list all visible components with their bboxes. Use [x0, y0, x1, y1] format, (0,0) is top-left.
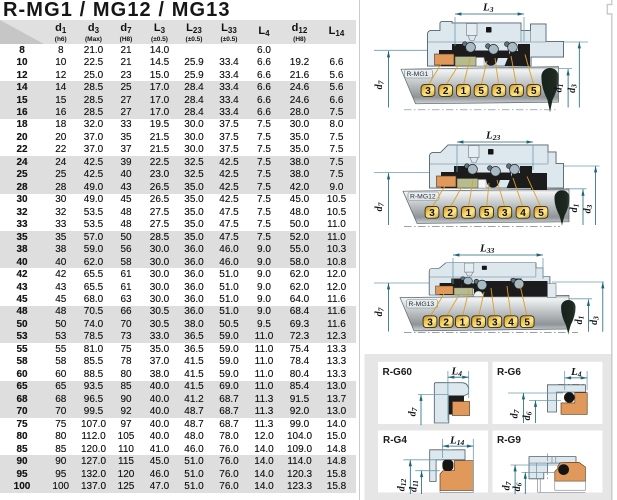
svg-text:3: 3: [429, 208, 435, 219]
svg-text:2: 2: [447, 208, 453, 219]
svg-text:4: 4: [514, 86, 520, 97]
svg-text:d1: d1: [569, 204, 581, 213]
svg-text:L33: L33: [479, 243, 494, 256]
svg-text:3: 3: [427, 317, 433, 328]
svg-text:4: 4: [508, 317, 514, 328]
svg-text:5: 5: [484, 208, 490, 219]
svg-text:d3: d3: [567, 84, 579, 93]
svg-text:1: 1: [461, 86, 467, 97]
svg-text:3: 3: [425, 86, 431, 97]
svg-text:d6: d6: [522, 411, 534, 420]
svg-text:d7: d7: [510, 409, 522, 418]
svg-text:1: 1: [460, 317, 466, 328]
svg-text:d3: d3: [589, 316, 601, 325]
svg-text:5: 5: [478, 86, 484, 97]
svg-text:d1: d1: [574, 316, 586, 325]
svg-text:3: 3: [502, 208, 508, 219]
svg-text:R-G60: R-G60: [383, 367, 413, 378]
svg-text:d7: d7: [374, 80, 386, 89]
svg-text:R-G6: R-G6: [497, 367, 521, 378]
svg-text:R-G4: R-G4: [383, 435, 407, 446]
svg-text:L3: L3: [482, 2, 494, 15]
svg-text:4: 4: [520, 208, 526, 219]
svg-text:5: 5: [531, 86, 537, 97]
svg-text:1: 1: [466, 208, 472, 219]
svg-text:L23: L23: [485, 130, 500, 143]
svg-text:d6: d6: [512, 482, 524, 491]
svg-text:R-MG12: R-MG12: [410, 194, 436, 201]
svg-text:d1: d1: [554, 84, 566, 93]
svg-text:R-G9: R-G9: [497, 435, 521, 446]
svg-text:d7: d7: [374, 307, 386, 316]
svg-text:3: 3: [496, 86, 502, 97]
svg-text:2: 2: [443, 86, 449, 97]
svg-text:3: 3: [492, 317, 498, 328]
svg-text:d11: d11: [409, 480, 421, 492]
svg-text:d7: d7: [374, 202, 386, 211]
svg-text:5: 5: [476, 317, 482, 328]
svg-text:d12: d12: [397, 479, 409, 492]
svg-text:5: 5: [538, 208, 544, 219]
svg-text:R-MG13: R-MG13: [409, 301, 435, 308]
svg-text:5: 5: [524, 317, 530, 328]
svg-text:d7: d7: [408, 407, 420, 416]
svg-text:R-MG1: R-MG1: [407, 71, 429, 78]
svg-text:d3: d3: [582, 204, 594, 213]
svg-text:2: 2: [443, 317, 449, 328]
